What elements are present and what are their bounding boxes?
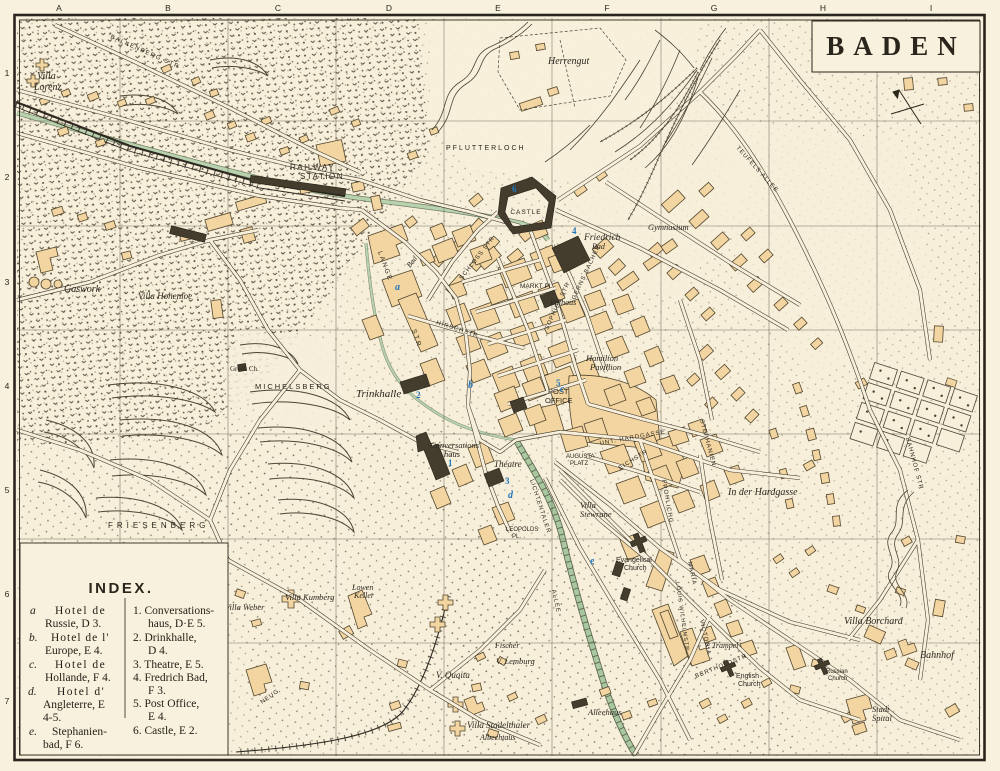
svg-text:1. Conversations-: 1. Conversations- <box>133 605 214 617</box>
svg-text:Villa Hohenloe: Villa Hohenloe <box>138 291 192 301</box>
svg-text:H: H <box>820 3 826 13</box>
svg-text:2: 2 <box>416 390 421 400</box>
svg-text:OFFICE: OFFICE <box>545 396 573 405</box>
svg-text:a: a <box>30 605 36 617</box>
svg-text:Fischer: Fischer <box>494 641 520 650</box>
svg-text:2. Drinkhalle,: 2. Drinkhalle, <box>133 632 197 644</box>
svg-text:D: D <box>386 3 392 13</box>
svg-text:4-5.: 4-5. <box>43 712 61 724</box>
svg-text:6: 6 <box>5 589 10 599</box>
svg-text:Russie, D 3.: Russie, D 3. <box>45 618 101 630</box>
svg-text:E: E <box>495 3 501 13</box>
svg-text:PFLUTTERLOCH: PFLUTTERLOCH <box>446 145 526 152</box>
svg-text:b.: b. <box>29 632 38 644</box>
svg-text:Villa: Villa <box>37 71 56 82</box>
svg-text:Albechtaus: Albechtaus <box>479 733 516 742</box>
svg-text:C: C <box>275 3 281 13</box>
svg-text:Gaswork: Gaswork <box>64 284 101 295</box>
svg-text:Greek Ch.: Greek Ch. <box>230 365 259 373</box>
svg-text:MICHELSBERG: MICHELSBERG <box>255 382 332 391</box>
svg-text:A: A <box>56 3 62 13</box>
svg-text:D 4.: D 4. <box>148 645 168 657</box>
svg-text:PL.: PL. <box>512 534 521 540</box>
svg-text:b: b <box>468 380 473 391</box>
svg-text:1: 1 <box>5 68 10 78</box>
svg-text:Church: Church <box>828 676 847 682</box>
svg-text:Hotel de: Hotel de <box>55 659 106 671</box>
svg-text:Lorenz: Lorenz <box>33 82 62 93</box>
svg-text:Hollande, F 4.: Hollande, F 4. <box>45 672 111 684</box>
svg-text:Church: Church <box>738 681 761 688</box>
svg-text:4: 4 <box>572 226 577 236</box>
svg-text:haus, D·E 5.: haus, D·E 5. <box>148 618 206 630</box>
svg-text:E 4.: E 4. <box>148 711 167 723</box>
svg-text:a: a <box>395 282 400 293</box>
svg-text:FRIESENBERG: FRIESENBERG <box>108 521 209 530</box>
svg-text:c.: c. <box>29 659 37 671</box>
svg-text:6. Castle, E 2.: 6. Castle, E 2. <box>133 725 198 737</box>
svg-text:Church: Church <box>624 565 647 572</box>
svg-text:In der Hardgasse: In der Hardgasse <box>727 487 798 498</box>
svg-text:F: F <box>604 3 609 13</box>
svg-text:d.: d. <box>28 686 37 698</box>
svg-text:Hotel de l': Hotel de l' <box>51 632 109 644</box>
svg-text:AUGUSTA: AUGUSTA <box>566 454 595 460</box>
svg-text:PLATZ: PLATZ <box>570 461 589 467</box>
svg-text:Alleehaus: Alleehaus <box>587 707 622 717</box>
svg-text:Russian: Russian <box>826 669 848 675</box>
svg-text:CASTLE: CASTLE <box>510 209 541 216</box>
svg-text:English: English <box>736 673 759 680</box>
svg-text:Villa Borchard: Villa Borchard <box>844 616 904 627</box>
svg-text:e.: e. <box>29 726 37 738</box>
svg-text:Théatre: Théatre <box>494 459 522 469</box>
svg-text:STATION: STATION <box>300 172 344 181</box>
svg-text:Gymnasium: Gymnasium <box>648 222 689 232</box>
svg-text:V. Quaita: V. Quaita <box>436 670 470 680</box>
svg-text:V. Lemburg: V. Lemburg <box>496 656 535 666</box>
svg-text:2: 2 <box>5 172 10 182</box>
svg-text:5: 5 <box>5 485 10 495</box>
svg-text:Spital: Spital <box>872 713 892 723</box>
svg-text:Stewrane: Stewrane <box>580 509 612 519</box>
svg-text:Herrengut: Herrengut <box>547 56 590 67</box>
svg-text:Pavillion: Pavillion <box>589 362 621 372</box>
svg-text:G: G <box>711 3 718 13</box>
svg-text:B: B <box>165 3 171 13</box>
svg-text:Evangelical: Evangelical <box>616 557 652 564</box>
svg-text:Hotel d': Hotel d' <box>57 686 105 698</box>
svg-text:INDEX.: INDEX. <box>88 580 153 597</box>
svg-text:Keller: Keller <box>353 591 375 600</box>
svg-text:3. Theatre, E 5.: 3. Theatre, E 5. <box>133 659 204 671</box>
svg-text:e: e <box>590 556 595 567</box>
svg-text:3: 3 <box>505 476 510 486</box>
svg-text:Villa Weber: Villa Weber <box>225 602 265 612</box>
svg-text:bad, F 6.: bad, F 6. <box>43 739 83 751</box>
svg-text:6: 6 <box>512 184 517 194</box>
svg-text:Villa Stadelthaler: Villa Stadelthaler <box>467 720 531 730</box>
svg-text:1: 1 <box>448 458 453 468</box>
svg-text:Hotel de: Hotel de <box>55 605 106 617</box>
svg-text:Angleterre, E: Angleterre, E <box>43 699 105 711</box>
svg-text:POST: POST <box>548 387 569 396</box>
svg-text:3: 3 <box>5 277 10 287</box>
svg-text:Villa Kumberg: Villa Kumberg <box>285 592 334 602</box>
svg-text:RAILWAY: RAILWAY <box>290 163 335 172</box>
svg-text:Trinkhalle: Trinkhalle <box>356 388 401 400</box>
svg-text:F 3.: F 3. <box>148 685 166 697</box>
svg-text:4. Fredrich Bad,: 4. Fredrich Bad, <box>133 672 208 684</box>
svg-text:Europe, E 4.: Europe, E 4. <box>45 645 103 657</box>
svg-text:Bahnhof: Bahnhof <box>920 650 955 661</box>
svg-text:I: I <box>930 3 932 13</box>
svg-text:4: 4 <box>5 381 10 391</box>
svg-text:c: c <box>560 384 565 395</box>
svg-text:BADEN: BADEN <box>826 31 966 61</box>
svg-text:MARKT PL.: MARKT PL. <box>520 283 554 290</box>
svg-text:Stephanien-: Stephanien- <box>52 726 107 738</box>
svg-text:5. Post Office,: 5. Post Office, <box>133 698 199 710</box>
svg-text:7: 7 <box>5 696 10 706</box>
svg-text:LEOPOLDS: LEOPOLDS <box>506 527 538 533</box>
